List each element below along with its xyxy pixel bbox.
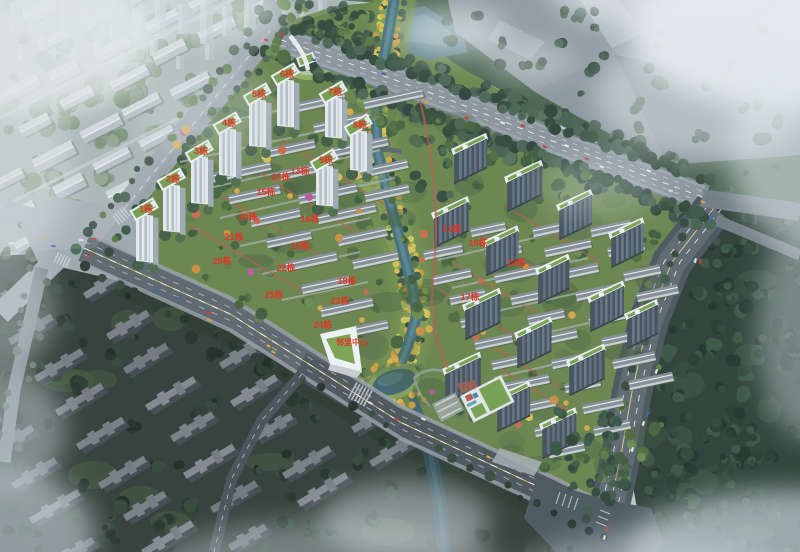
svg-text:12栋: 12栋: [506, 257, 525, 268]
svg-text:邻里中心: 邻里中心: [335, 337, 368, 347]
svg-text:22栋: 22栋: [276, 262, 295, 273]
svg-text:17栋: 17栋: [460, 291, 479, 302]
svg-text:5栋: 5栋: [252, 88, 266, 99]
svg-text:13栋: 13栋: [290, 165, 309, 176]
svg-text:3栋: 3栋: [194, 145, 208, 156]
svg-text:9栋: 9栋: [319, 154, 333, 165]
svg-text:16栋: 16栋: [300, 213, 319, 224]
svg-text:18栋: 18栋: [337, 275, 356, 286]
svg-text:4栋: 4栋: [222, 117, 236, 128]
svg-text:21栋: 21栋: [224, 231, 243, 242]
svg-text:1栋: 1栋: [139, 203, 153, 214]
svg-text:25栋: 25栋: [264, 289, 283, 300]
svg-text:8栋: 8栋: [353, 119, 367, 130]
svg-text:23栋: 23栋: [330, 295, 349, 306]
svg-text:11栋: 11栋: [443, 223, 462, 234]
svg-text:2栋: 2栋: [166, 173, 180, 184]
svg-text:20栋: 20栋: [238, 211, 257, 222]
svg-text:26栋: 26栋: [212, 255, 231, 266]
svg-text:19栋: 19栋: [290, 240, 309, 251]
svg-text:24栋: 24栋: [313, 319, 332, 330]
svg-text:14栋: 14栋: [271, 171, 290, 182]
svg-text:15栋: 15栋: [256, 186, 275, 197]
svg-text:10栋: 10栋: [468, 237, 487, 248]
svg-text:7栋: 7栋: [328, 86, 342, 97]
svg-text:6栋: 6栋: [280, 68, 294, 79]
